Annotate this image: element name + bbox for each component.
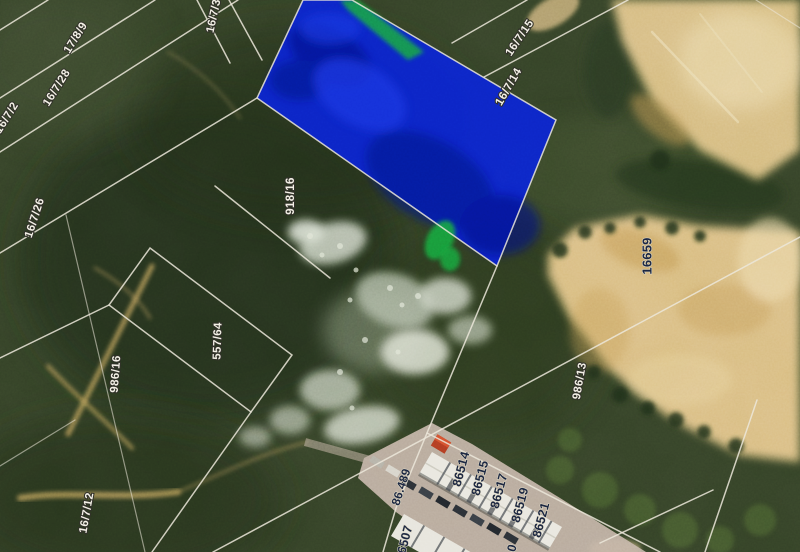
parcel-label-55764: 557/64 [211, 322, 224, 360]
parcel-label-91816: 918/16 [285, 177, 297, 215]
aerial-map-canvas[interactable]: 17/8/916/7/2816/7/216/7/2616/7/316/7/151… [0, 0, 800, 552]
aerial-map[interactable]: 17/8/916/7/2816/7/216/7/2616/7/316/7/151… [0, 0, 800, 552]
parcel-label-16659: 16659 [640, 237, 655, 274]
